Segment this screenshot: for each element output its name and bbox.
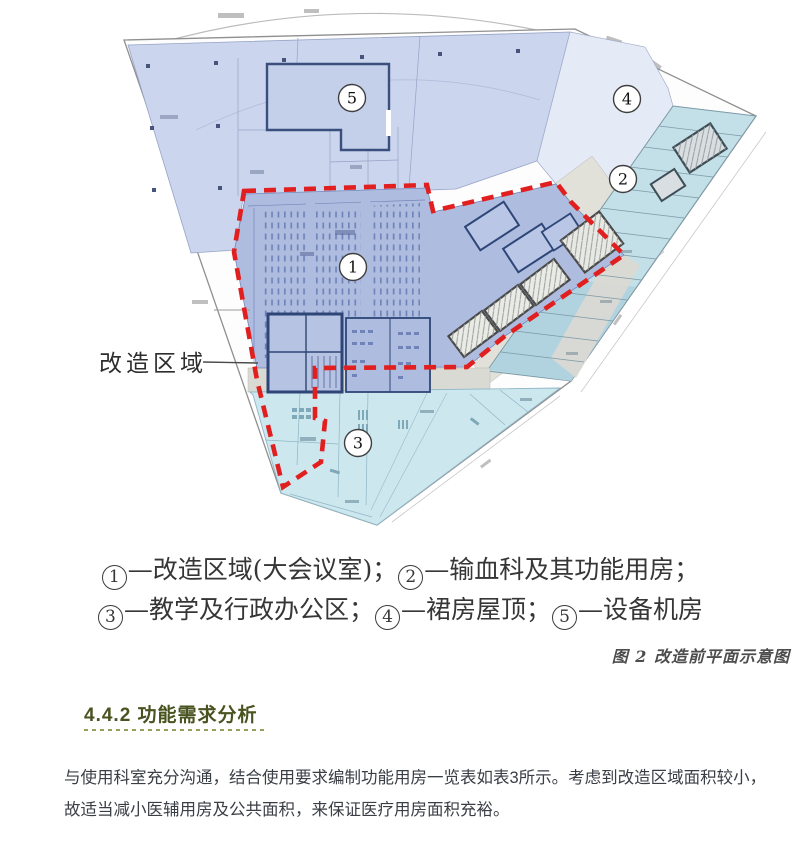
marker-5: 5 [339, 85, 366, 112]
legend-circle-2: 2 [398, 565, 423, 590]
legend-circle-1: 1 [102, 565, 127, 590]
legend-text-5: —设备机房 [578, 595, 703, 624]
document-page: 改造区域 1 2 3 4 5 [0, 0, 800, 847]
legend-circle-3: 3 [98, 605, 123, 630]
stage-rooms [268, 314, 342, 392]
svg-text:3: 3 [353, 434, 363, 453]
legend-circle-4: 4 [375, 605, 400, 630]
svg-text:1: 1 [348, 258, 358, 277]
marker-2: 2 [610, 166, 637, 193]
svg-text:2: 2 [618, 170, 628, 189]
legend-text-2: —输血科及其功能用房； [424, 555, 699, 584]
marker-1: 1 [340, 254, 367, 281]
marker-3: 3 [345, 430, 372, 457]
svg-text:4: 4 [622, 90, 632, 109]
body-paragraph-line-2: 故适当减小医辅用房及公共面积，来保证医疗用房面积充裕。 [64, 796, 794, 820]
legend-circle-5: 5 [552, 605, 577, 630]
legend-line-1: 1—改造区域(大会议室)；2—输血科及其功能用房； [0, 550, 800, 590]
svg-text:5: 5 [347, 89, 357, 108]
body-paragraph-line-1: 与使用科室充分沟通，结合使用要求编制功能用房一览表如表3所示。考虑到改造区域面积… [64, 764, 794, 788]
section-heading: 4.4.2 功能需求分析 [84, 700, 258, 727]
legend-text-4: —裙房屋顶； [401, 595, 551, 624]
door-gap [386, 110, 391, 136]
leader-line [203, 362, 258, 363]
figure-legend: 1—改造区域(大会议室)；2—输血科及其功能用房； 3—教学及行政办公区；4—裙… [0, 550, 800, 630]
marker-4: 4 [614, 86, 641, 113]
figure-caption: 图 2 改造前平面示意图 [612, 643, 790, 667]
legend-line-2: 3—教学及行政办公区；4—裙房屋顶；5—设备机房 [0, 590, 800, 630]
floorplan-figure: 改造区域 1 2 3 4 5 [0, 0, 800, 548]
heading-dashed-underline [84, 729, 264, 731]
legend-text-1: —改造区域(大会议室)； [128, 555, 398, 584]
teaching-admin-area [250, 388, 560, 525]
legend-text-3: —教学及行政办公区； [124, 595, 374, 624]
renovation-area-label: 改造区域 [99, 351, 207, 377]
control-rooms [346, 318, 430, 392]
